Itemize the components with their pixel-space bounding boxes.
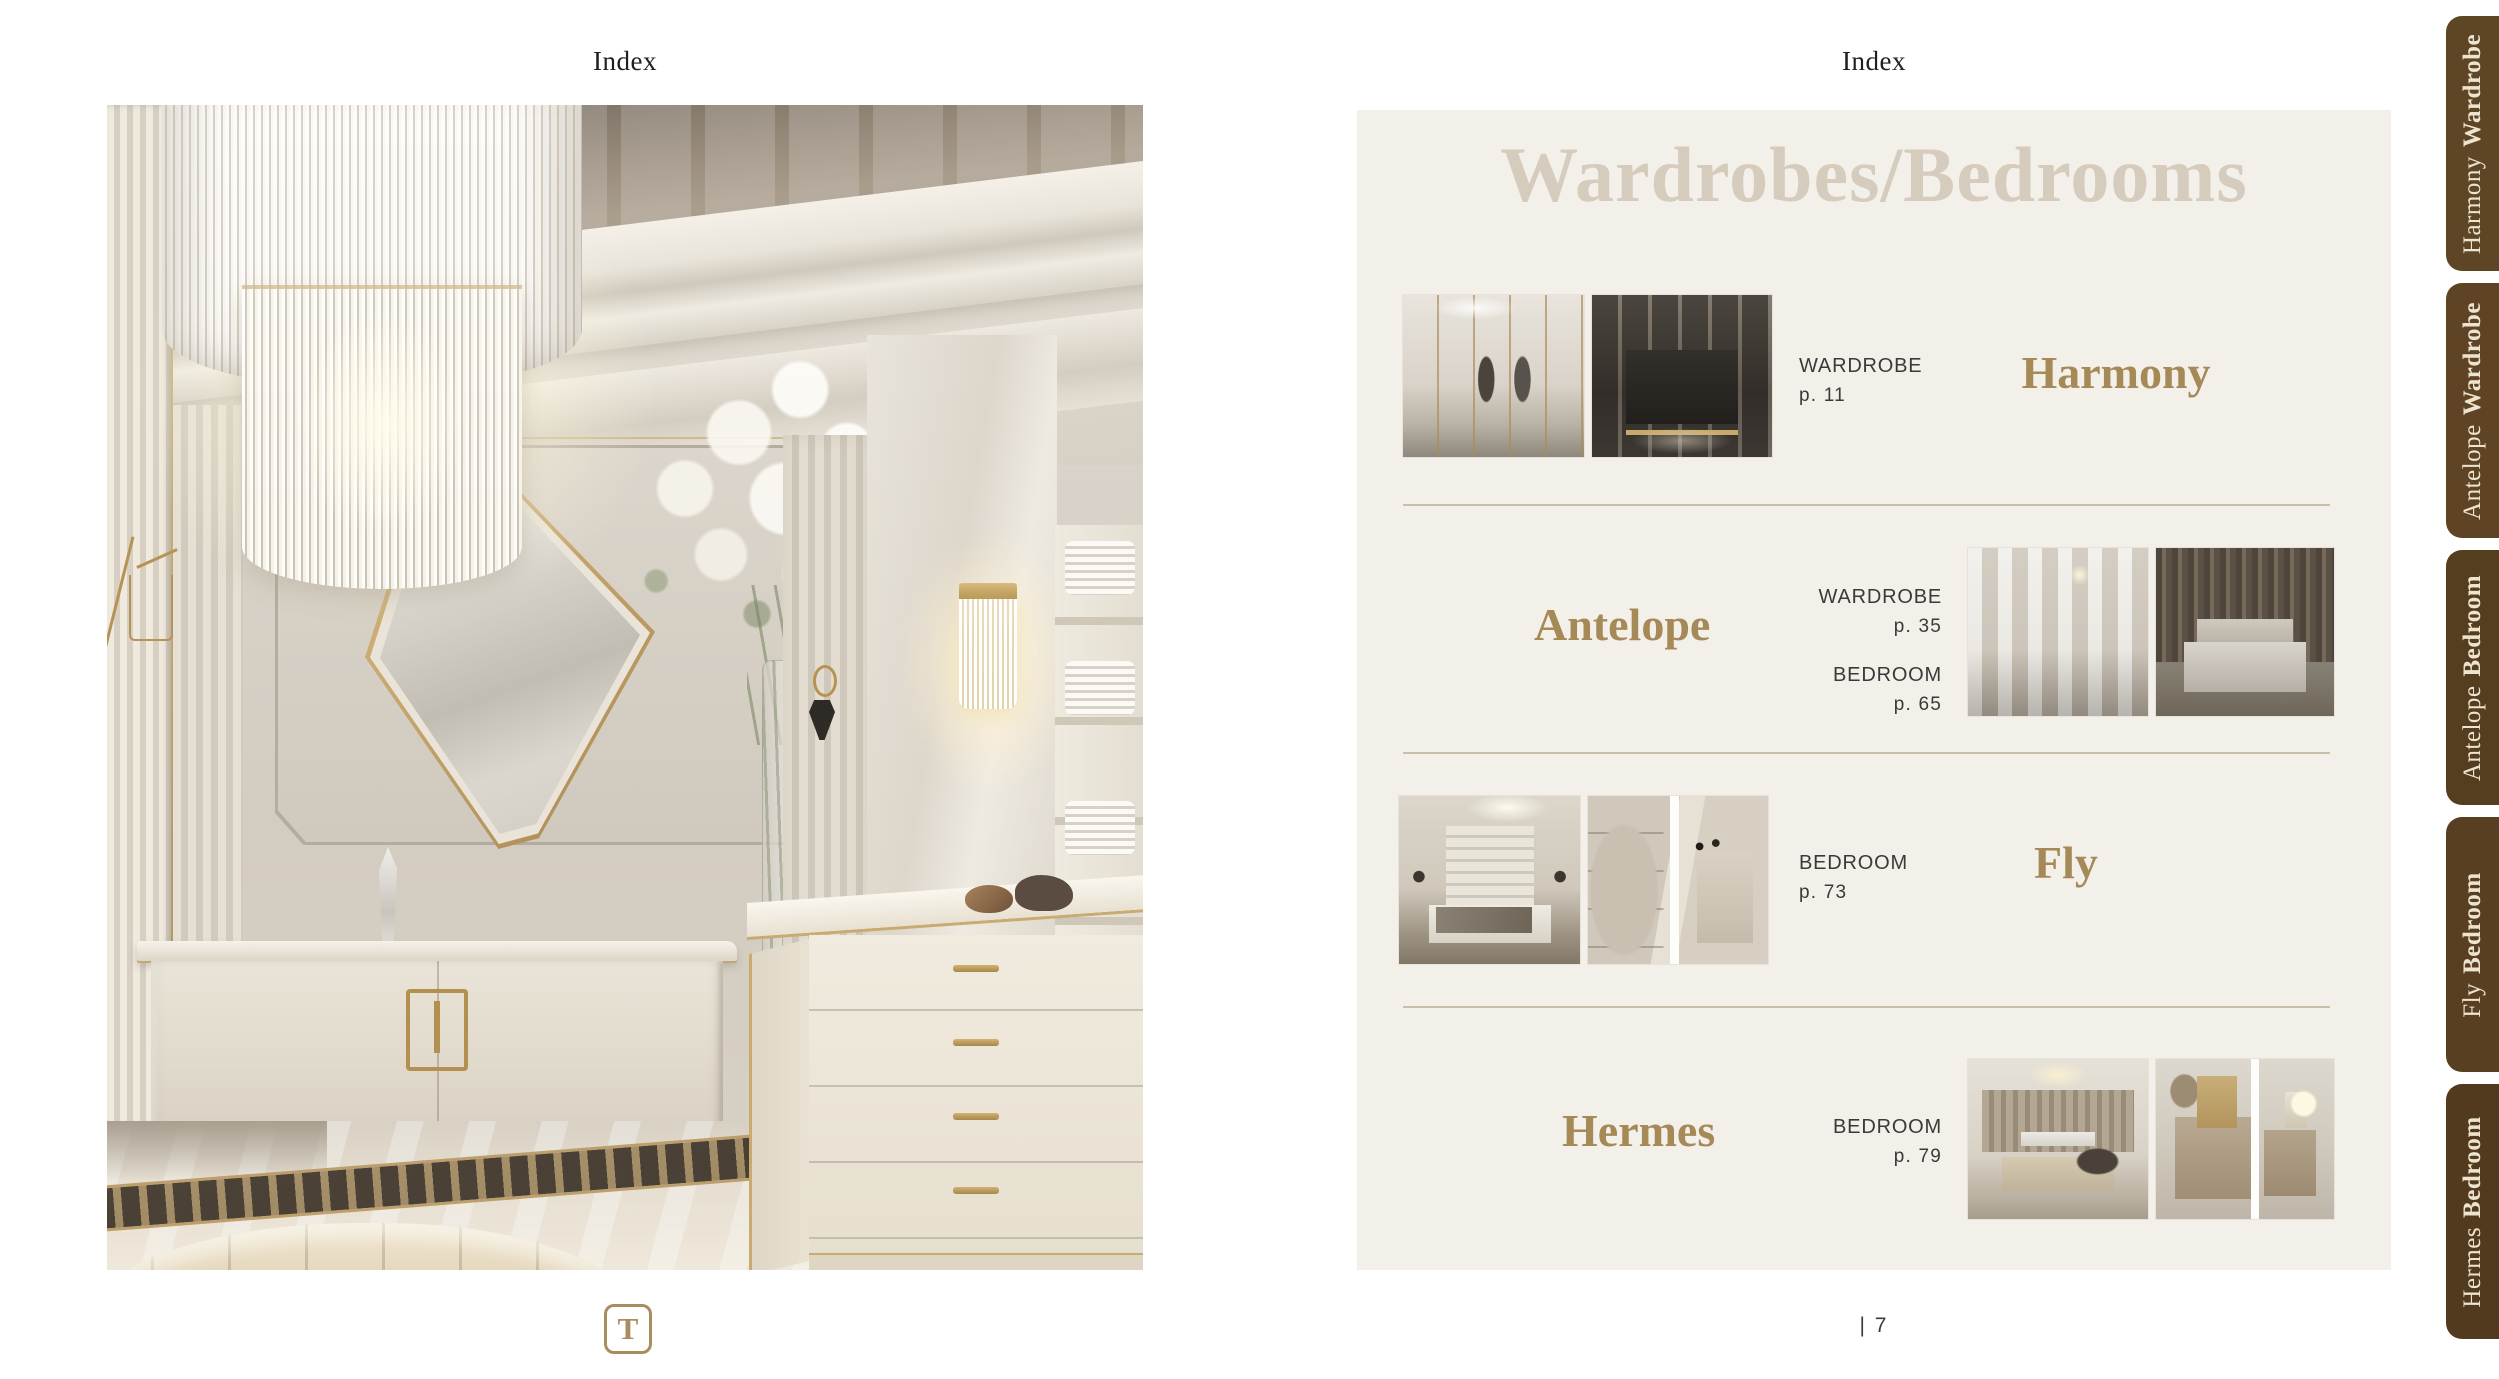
side-tab-fly-bedroom[interactable]: FlyBedroom — [2446, 817, 2499, 1072]
tab-category: Wardrobe — [2459, 302, 2486, 415]
photo-fly-bedroom-1[interactable] — [1399, 796, 1580, 964]
tab-category: Bedroom — [2459, 872, 2486, 974]
photo-antelope-wardrobe[interactable] — [1968, 548, 2148, 716]
page-title: Wardrobes/Bedrooms — [1357, 136, 2391, 214]
drawer-handle — [953, 1039, 999, 1046]
side-tab-label: AntelopeBedroom — [2459, 574, 2487, 780]
side-tab-label: HermesBedroom — [2459, 1116, 2487, 1307]
tab-series-name: Fly — [2459, 982, 2486, 1017]
tab-category: Wardrobe — [2459, 33, 2486, 146]
wall-sconce — [959, 599, 1017, 709]
series-name-antelope[interactable]: Antelope — [1534, 602, 1710, 648]
category-label: BEDROOM — [1833, 664, 1942, 686]
photo-fly-bedroom-2[interactable] — [1588, 796, 1768, 964]
drawer-handle — [953, 1113, 999, 1120]
antelope-index-entry[interactable]: WARDROBE p. 35 BEDROOM p. 65 — [1742, 586, 1942, 716]
tab-series-name: Hermes — [2459, 1226, 2486, 1307]
row-divider — [1403, 1006, 2330, 1008]
row-divider — [1403, 504, 2330, 506]
page-ref: p. 79 — [1742, 1146, 1942, 1168]
side-tab-antelope-bedroom[interactable]: AntelopeBedroom — [2446, 550, 2499, 805]
photo-hermes-bedroom-2[interactable] — [2156, 1059, 2334, 1219]
index-panel: Wardrobes/Bedrooms WARDROBE p. 11 Harmon… — [1357, 110, 2391, 1270]
harmony-index-entry[interactable]: WARDROBE p. 11 — [1799, 355, 1922, 407]
brand-logo: T — [604, 1304, 652, 1354]
rhino-figurine — [1015, 875, 1073, 911]
side-tab-antelope-wardrobe[interactable]: AntelopeWardrobe — [2446, 283, 2499, 538]
wall-sconce-cap — [959, 583, 1017, 599]
page-ref: p. 35 — [1742, 616, 1942, 638]
island-dresser — [809, 935, 1143, 1255]
bronze-figurine — [965, 885, 1013, 913]
side-tab-label: HarmonyWardrobe — [2459, 33, 2487, 253]
page-ref: p. 65 — [1742, 694, 1942, 716]
category-label: WARDROBE — [1799, 355, 1922, 377]
page-ref: p. 11 — [1799, 385, 1922, 407]
drawer-handle — [953, 1187, 999, 1194]
gold-ring — [813, 665, 837, 697]
side-tab-harmony-wardrobe[interactable]: HarmonyWardrobe — [2446, 16, 2499, 271]
drawer-handle — [953, 965, 999, 972]
crystal-chandelier-lower-tier — [242, 285, 522, 589]
series-name-hermes[interactable]: Hermes — [1562, 1108, 1715, 1154]
hermes-index-entry[interactable]: BEDROOM p. 79 — [1742, 1116, 1942, 1168]
series-name-fly[interactable]: Fly — [1891, 840, 2241, 886]
index-hero-photo — [107, 105, 1143, 1270]
side-tab-hermes-bedroom[interactable]: HermesBedroom — [2446, 1084, 2499, 1339]
island-dresser-side — [749, 939, 809, 1270]
series-name-harmony[interactable]: Harmony — [1941, 350, 2291, 396]
right-page-header: Index — [1357, 46, 2391, 77]
side-tab-label: AntelopeWardrobe — [2459, 302, 2487, 520]
photo-hermes-bedroom-1[interactable] — [1968, 1059, 2148, 1219]
console-tabletop — [137, 941, 737, 961]
photo-harmony-wardrobe-1[interactable] — [1403, 295, 1584, 457]
plate-stack — [1065, 661, 1135, 715]
plate-stack — [1065, 541, 1135, 595]
row-divider — [1403, 752, 2330, 754]
category-label: WARDROBE — [1819, 586, 1942, 608]
photo-antelope-bedroom[interactable] — [2156, 548, 2334, 716]
category-label: BEDROOM — [1833, 1116, 1942, 1138]
crystal-figurine — [375, 847, 401, 955]
tab-category: Bedroom — [2459, 574, 2486, 676]
console-gold-handle — [406, 989, 468, 1071]
island-plinth — [809, 1255, 1143, 1270]
photo-harmony-wardrobe-2[interactable] — [1592, 295, 1772, 457]
tab-series-name: Harmony — [2459, 156, 2486, 254]
tab-series-name: Antelope — [2459, 685, 2486, 781]
tab-series-name: Antelope — [2459, 424, 2486, 520]
left-page-header: Index — [107, 46, 1143, 77]
page-number: | 7 — [1357, 1314, 2391, 1338]
plate-stack — [1065, 801, 1135, 855]
side-tab-label: FlyBedroom — [2459, 872, 2487, 1018]
tab-category: Bedroom — [2459, 1116, 2486, 1218]
